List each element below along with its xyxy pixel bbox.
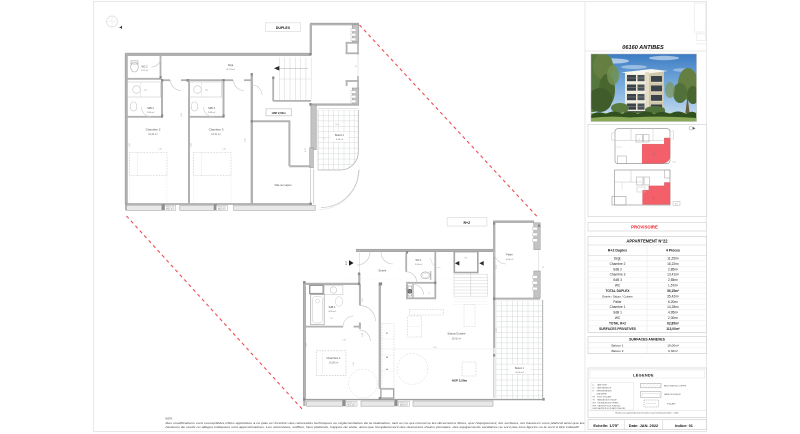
svg-text:2,95: 2,95	[245, 138, 247, 142]
svg-text:Indice: 01: Indice: 01	[675, 423, 694, 428]
svg-text:LL: LL	[386, 369, 388, 371]
svg-text:Palier: Palier	[506, 253, 513, 257]
svg-text:Chambre 2: Chambre 2	[146, 128, 161, 132]
svg-text:0,93: 0,93	[405, 289, 409, 291]
svg-text:2,85 m²: 2,85 m²	[147, 111, 155, 114]
svg-text:4,10: 4,10	[305, 148, 307, 152]
svg-text:2,55: 2,55	[362, 298, 364, 302]
svg-text:2,48: 2,48	[342, 340, 345, 342]
svg-text:Séjour/Cuisine: Séjour/Cuisine	[447, 332, 466, 336]
svg-text:Chambre 1: Chambre 1	[326, 356, 341, 360]
svg-text:2,95: 2,95	[181, 113, 183, 117]
svg-text:Chambre 2: Chambre 2	[610, 262, 626, 266]
svg-text:2: 2	[324, 139, 326, 140]
svg-text:16,22m²: 16,22m²	[667, 262, 679, 266]
svg-text:PLACARD: PLACARD	[667, 402, 676, 405]
svg-text:WC 2: WC 2	[142, 65, 149, 68]
svg-text:6,20m²: 6,20m²	[668, 300, 678, 304]
svg-text:·: ·	[622, 195, 623, 199]
svg-text:13,41 m²: 13,41 m²	[211, 133, 221, 136]
svg-text:SURFACES PRIVATIVES: SURFACES PRIVATIVES	[599, 327, 636, 331]
svg-text:WC: WC	[615, 284, 621, 288]
svg-text:Echelle: 1/75°: Echelle: 1/75°	[593, 423, 619, 428]
svg-text:WC: WC	[615, 316, 621, 320]
svg-text:·: ·	[625, 149, 626, 153]
svg-text:HSFP HAUTEUR SOUS FAUX PLAFOND: HSFP HAUTEUR SOUS FAUX PLAFOND	[593, 407, 627, 410]
svg-text:1,40: 1,40	[353, 362, 355, 366]
svg-text:·: ·	[659, 133, 660, 137]
svg-text:FAUX PLAFOND /COFFRE: FAUX PLAFOND /COFFRE	[664, 385, 687, 388]
svg-text:4,95 m²: 4,95 m²	[328, 310, 336, 313]
svg-text:HSP HAUTEUR SOUS PLAFOND: HSP HAUTEUR SOUS PLAFOND	[593, 404, 621, 407]
svg-text:Vide sur séjour: Vide sur séjour	[274, 183, 291, 187]
svg-text:Date: JAN. 2022: Date: JAN. 2022	[629, 423, 659, 428]
svg-text:R+3: R+3	[673, 162, 676, 164]
svg-text:SdB 1: SdB 1	[329, 306, 336, 309]
svg-text:LV LAVE VAISSELLE: LV LAVE VAISSELLE	[593, 387, 612, 390]
svg-text:2,85 m²: 2,85 m²	[208, 111, 216, 114]
svg-text:Dégt: Dégt	[228, 63, 234, 67]
svg-text:11,25 m²: 11,25 m²	[226, 68, 235, 71]
svg-text:·: ·	[624, 133, 625, 137]
svg-text:PROVISOIRE: PROVISOIRE	[631, 225, 658, 230]
svg-text:DUPLEX: DUPLEX	[276, 26, 291, 30]
svg-text:14,28m²: 14,28m²	[667, 305, 679, 309]
svg-text:LÉGENDE: LÉGENDE	[633, 373, 654, 378]
svg-text:2,48: 2,48	[433, 347, 436, 349]
svg-text:4,95m²: 4,95m²	[668, 311, 678, 315]
svg-text:1,57m²: 1,57m²	[668, 284, 678, 288]
svg-text:2,85m²: 2,85m²	[668, 267, 678, 271]
svg-text:R RÉFRIGÉRATEUR: R RÉFRIGÉRATEUR	[593, 390, 613, 393]
svg-text:VR VOLET ROULANT: VR VOLET ROULANT	[593, 395, 613, 398]
svg-text:1,40: 1,40	[222, 149, 226, 151]
svg-text:·: ·	[624, 176, 625, 180]
svg-text:1,64: 1,64	[335, 124, 339, 126]
svg-text:62,85m²: 62,85m²	[667, 321, 679, 325]
svg-text:1,40: 1,40	[158, 149, 162, 151]
svg-text:35,42m²: 35,42m²	[667, 294, 679, 298]
svg-text:Chambre 1: Chambre 1	[610, 305, 626, 309]
svg-text:2,00 m²: 2,00 m²	[415, 263, 422, 266]
svg-text:TOTAL DUPLEX: TOTAL DUPLEX	[605, 289, 630, 293]
svg-text:HSP 2,50m: HSP 2,50m	[452, 378, 468, 382]
svg-text:Balcon 2: Balcon 2	[335, 135, 345, 137]
svg-text:Hauteur sous plafond de toutes: Hauteur sous plafond de toutes les pièce…	[615, 412, 679, 415]
svg-text:3,05: 3,05	[191, 143, 193, 147]
svg-text:R+2: R+2	[464, 221, 471, 225]
svg-text:NOTA:: NOTA:	[166, 418, 173, 421]
svg-text:SdB 3: SdB 3	[208, 107, 215, 110]
svg-text:10,00 m²: 10,00 m²	[515, 371, 524, 374]
svg-text:Entrée / Séjour / Cuisine: Entrée / Séjour / Cuisine	[602, 294, 633, 298]
svg-text:CHAUDIÈRE: CHAUDIÈRE	[593, 392, 608, 395]
svg-text:3,10: 3,10	[496, 265, 498, 269]
svg-text:N°22: N°22	[346, 261, 348, 265]
svg-text:13,41m²: 13,41m²	[667, 273, 679, 277]
svg-text:2,47: 2,47	[330, 318, 334, 320]
svg-text:06160 ANTIBES: 06160 ANTIBES	[622, 45, 664, 51]
svg-text:GAINE TECHNIQUE: GAINE TECHNIQUE	[664, 393, 681, 396]
svg-text:SdB 2: SdB 2	[613, 267, 622, 271]
svg-text:Chambre 3: Chambre 3	[610, 273, 626, 277]
svg-text:Balcon 2: Balcon 2	[611, 349, 623, 353]
svg-text:11,25m²: 11,25m²	[667, 256, 678, 260]
svg-text:2,00m²: 2,00m²	[668, 316, 678, 320]
svg-text:Palier: Palier	[613, 300, 622, 304]
svg-text:APPARTEMENT N°22: APPARTEMENT N°22	[626, 238, 668, 243]
svg-text:·: ·	[657, 176, 658, 180]
svg-text:Dégt.: Dégt.	[614, 256, 622, 260]
svg-text:3,05: 3,05	[129, 143, 131, 147]
svg-text:35,42 m²: 35,42 m²	[452, 337, 462, 340]
svg-text:Chambre 3: Chambre 3	[209, 128, 224, 132]
svg-text:SURFACES ANNEXES: SURFACES ANNEXES	[629, 338, 665, 342]
svg-text:RDT RELEVAGE DES TERRES: RDT RELEVAGE DES TERRES	[593, 401, 620, 404]
svg-text:6,30 m²: 6,30 m²	[336, 138, 343, 141]
svg-text:TE TABLEAU ÉLECTRIQUE: TE TABLEAU ÉLECTRIQUE	[593, 398, 618, 401]
svg-text:TOTAL R+2: TOTAL R+2	[609, 321, 626, 325]
svg-text:6,20 m²: 6,20 m²	[506, 258, 514, 261]
svg-text:2,85m²: 2,85m²	[668, 278, 678, 282]
svg-text:Entrée: Entrée	[379, 269, 387, 273]
svg-text:1,57 m²: 1,57 m²	[141, 69, 148, 72]
svg-text:14,28 m²: 14,28 m²	[329, 362, 339, 365]
svg-text:LL LAVE LINGE: LL LAVE LINGE	[593, 384, 608, 387]
svg-text:3,35: 3,35	[306, 343, 308, 347]
svg-text:113,00m²: 113,00m²	[666, 327, 679, 331]
svg-text:R+2 Duplex: R+2 Duplex	[608, 249, 627, 253]
svg-text:SdB 2: SdB 2	[147, 107, 154, 110]
svg-text:hauteurs de seuils ou allèges: hauteurs de seuils ou allèges indiquées …	[166, 426, 581, 429]
svg-text:4 Pièces: 4 Pièces	[666, 249, 680, 253]
svg-text:4,95: 4,95	[496, 328, 498, 332]
svg-text:SdB 3: SdB 3	[613, 278, 622, 282]
svg-text:6,30m²: 6,30m²	[668, 349, 678, 353]
svg-text:WC 1: WC 1	[416, 259, 423, 262]
svg-text:SdB 1: SdB 1	[613, 311, 622, 315]
svg-text:50,15m²: 50,15m²	[667, 289, 679, 293]
svg-text:1,48: 1,48	[362, 333, 364, 337]
svg-text:Des modifications sont suscept: Des modifications sont susceptibles d'êt…	[166, 422, 586, 425]
svg-text:Balcon 1: Balcon 1	[611, 344, 623, 348]
svg-text:16,22 m²: 16,22 m²	[148, 133, 158, 136]
svg-text:R+2: R+2	[675, 203, 678, 205]
svg-text:Balcon 1: Balcon 1	[515, 368, 525, 370]
svg-text:10,00m²: 10,00m²	[667, 344, 678, 348]
svg-text:HSP 2,60m: HSP 2,60m	[272, 111, 286, 115]
